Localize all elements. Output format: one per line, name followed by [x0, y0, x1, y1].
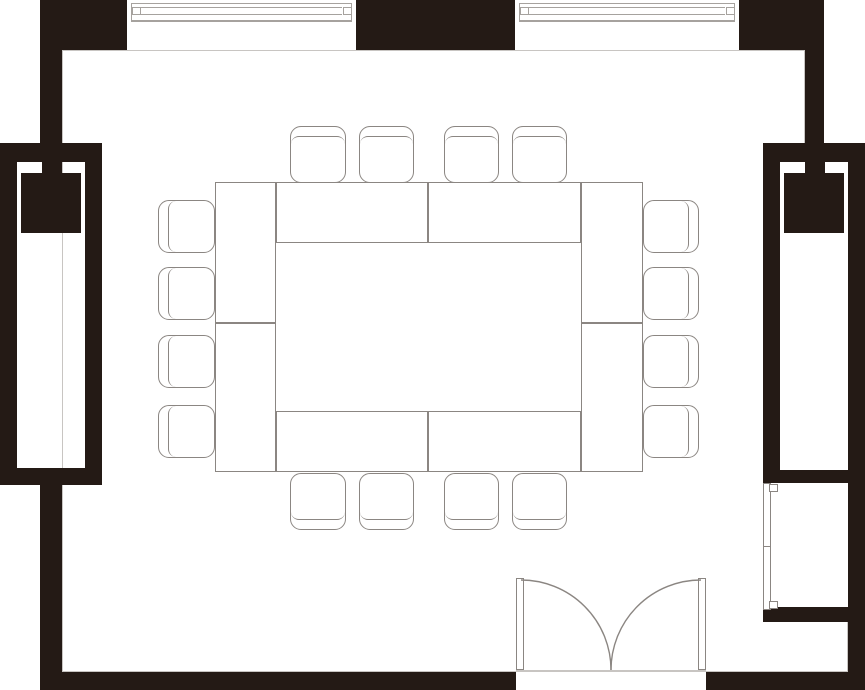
- niche-bottom: [763, 607, 865, 622]
- chair-bottom-4-seat: [513, 474, 566, 520]
- door-leaf-left: [516, 578, 524, 670]
- window-1-glazing: [131, 3, 352, 21]
- window-2-sill-line: [519, 21, 735, 22]
- window-2-glass-line-1: [529, 7, 725, 8]
- window-1-frame-tab-2: [343, 7, 352, 15]
- closet-right-block: [784, 173, 844, 233]
- chair-bottom-2: [359, 473, 414, 530]
- chair-bottom-3-seat: [445, 474, 498, 520]
- wall-panel-bracket-2: [769, 601, 778, 609]
- wall-bottom-right: [706, 672, 865, 690]
- chair-top-1: [290, 126, 346, 183]
- chair-left-3-seat: [168, 336, 214, 387]
- chair-top-4-seat: [513, 136, 566, 182]
- chair-right-2: [643, 267, 699, 320]
- table-top-1: [276, 182, 428, 243]
- chair-left-2: [158, 267, 215, 320]
- chair-right-1: [643, 200, 699, 253]
- chair-top-1-seat: [291, 136, 345, 182]
- chair-left-1-seat: [168, 201, 214, 252]
- table-bottom-2: [428, 411, 581, 472]
- wall-bottom-left: [40, 672, 516, 690]
- chair-left-3: [158, 335, 215, 388]
- door-leaf-right: [698, 578, 706, 670]
- door-swing-arc-left: [521, 580, 611, 670]
- closet-right-bottom: [763, 470, 848, 483]
- chair-right-4-seat: [644, 406, 689, 457]
- closet-left-bottom: [0, 468, 102, 485]
- table-right-2: [581, 323, 643, 472]
- closet-right-side-inner: [763, 143, 780, 483]
- window-1-glass-line-1: [141, 7, 342, 8]
- wall-top-right: [739, 0, 824, 50]
- window-1-glass-line-2: [141, 14, 342, 15]
- table-right-1: [581, 182, 643, 323]
- meeting-room-floor-plan: [0, 0, 865, 690]
- chair-bottom-1-seat: [291, 474, 345, 520]
- closet-left-side-outer: [0, 143, 17, 485]
- window-1-sill-line: [131, 21, 352, 22]
- table-left-1: [215, 182, 276, 323]
- chair-top-2: [359, 126, 414, 183]
- wall-left-lower: [40, 485, 62, 672]
- wall-right-upper: [805, 50, 824, 143]
- door-swing-arc-right: [611, 580, 701, 670]
- table-left-2: [215, 323, 276, 472]
- chair-right-4: [643, 405, 699, 458]
- chair-top-3-seat: [445, 136, 498, 182]
- chair-bottom-3: [444, 473, 499, 530]
- window-2-frame-tab-2: [726, 7, 735, 15]
- chair-left-4: [158, 405, 215, 458]
- chair-left-2-seat: [168, 268, 214, 319]
- chair-top-2-seat: [360, 136, 413, 182]
- chair-left-4-seat: [168, 406, 214, 457]
- table-bottom-1: [276, 411, 428, 472]
- wall-panel-center-tick: [763, 546, 771, 547]
- wall-top-center: [356, 0, 515, 50]
- chair-top-3: [444, 126, 499, 183]
- chair-right-3: [643, 335, 699, 388]
- chair-bottom-1: [290, 473, 346, 530]
- window-2-glazing: [519, 3, 735, 21]
- interior-edge-top: [62, 50, 805, 51]
- table-top-2: [428, 182, 581, 243]
- chair-right-3-seat: [644, 336, 689, 387]
- chair-top-4: [512, 126, 567, 183]
- closet-left-side-inner: [85, 143, 102, 485]
- chair-bottom-4: [512, 473, 567, 530]
- chair-bottom-2-seat: [360, 474, 413, 520]
- wall-panel-bracket-1: [769, 484, 778, 492]
- wall-top-left: [40, 0, 127, 50]
- wall-right-side: [848, 143, 865, 672]
- door-threshold: [516, 670, 706, 671]
- chair-right-2-seat: [644, 268, 689, 319]
- closet-left-block: [21, 173, 81, 233]
- window-2-frame-tab-1: [520, 7, 529, 15]
- window-2-glass-line-2: [529, 14, 725, 15]
- wall-left-upper: [40, 50, 62, 143]
- chair-left-1: [158, 200, 215, 253]
- window-1-frame-tab-1: [132, 7, 141, 15]
- chair-right-1-seat: [644, 201, 689, 252]
- door-swing-layer: [0, 0, 865, 690]
